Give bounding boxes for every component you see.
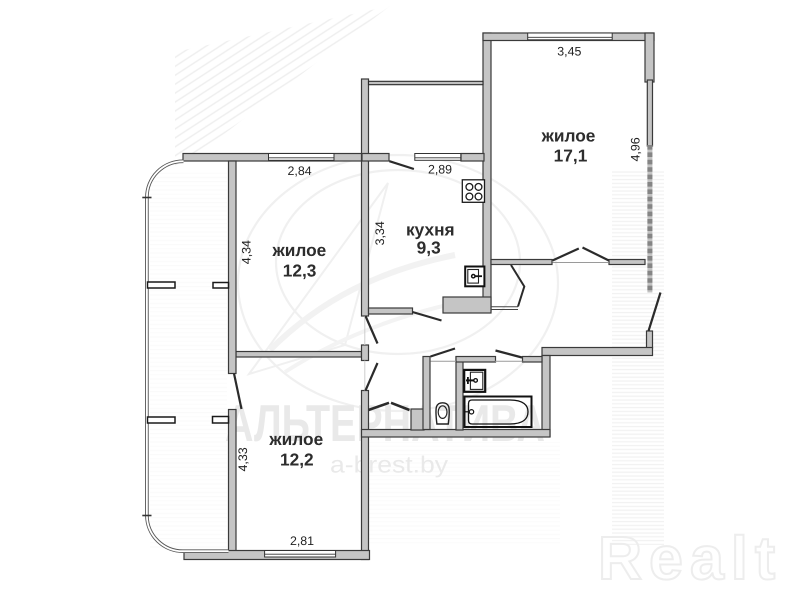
svg-text:3,34: 3,34 bbox=[373, 221, 387, 245]
svg-text:жилое: жилое bbox=[272, 240, 327, 260]
svg-text:4,96: 4,96 bbox=[629, 137, 643, 161]
svg-text:жилое: жилое bbox=[268, 429, 323, 449]
svg-text:17,1: 17,1 bbox=[554, 145, 588, 165]
svg-text:9,3: 9,3 bbox=[417, 238, 441, 258]
svg-text:2,81: 2,81 bbox=[290, 534, 314, 548]
svg-text:12,2: 12,2 bbox=[280, 450, 314, 470]
svg-text:4,34: 4,34 bbox=[239, 240, 253, 264]
svg-text:кухня: кухня bbox=[406, 220, 455, 240]
svg-text:жилое: жилое bbox=[541, 126, 596, 146]
svg-text:2,84: 2,84 bbox=[288, 164, 312, 178]
svg-text:4,33: 4,33 bbox=[236, 447, 250, 471]
svg-text:3,45: 3,45 bbox=[557, 44, 581, 58]
svg-text:12,3: 12,3 bbox=[283, 260, 317, 280]
svg-text:2,89: 2,89 bbox=[428, 163, 452, 177]
svg-text:a-brest.by: a-brest.by bbox=[330, 452, 448, 478]
svg-text:Realt: Realt bbox=[598, 524, 782, 592]
